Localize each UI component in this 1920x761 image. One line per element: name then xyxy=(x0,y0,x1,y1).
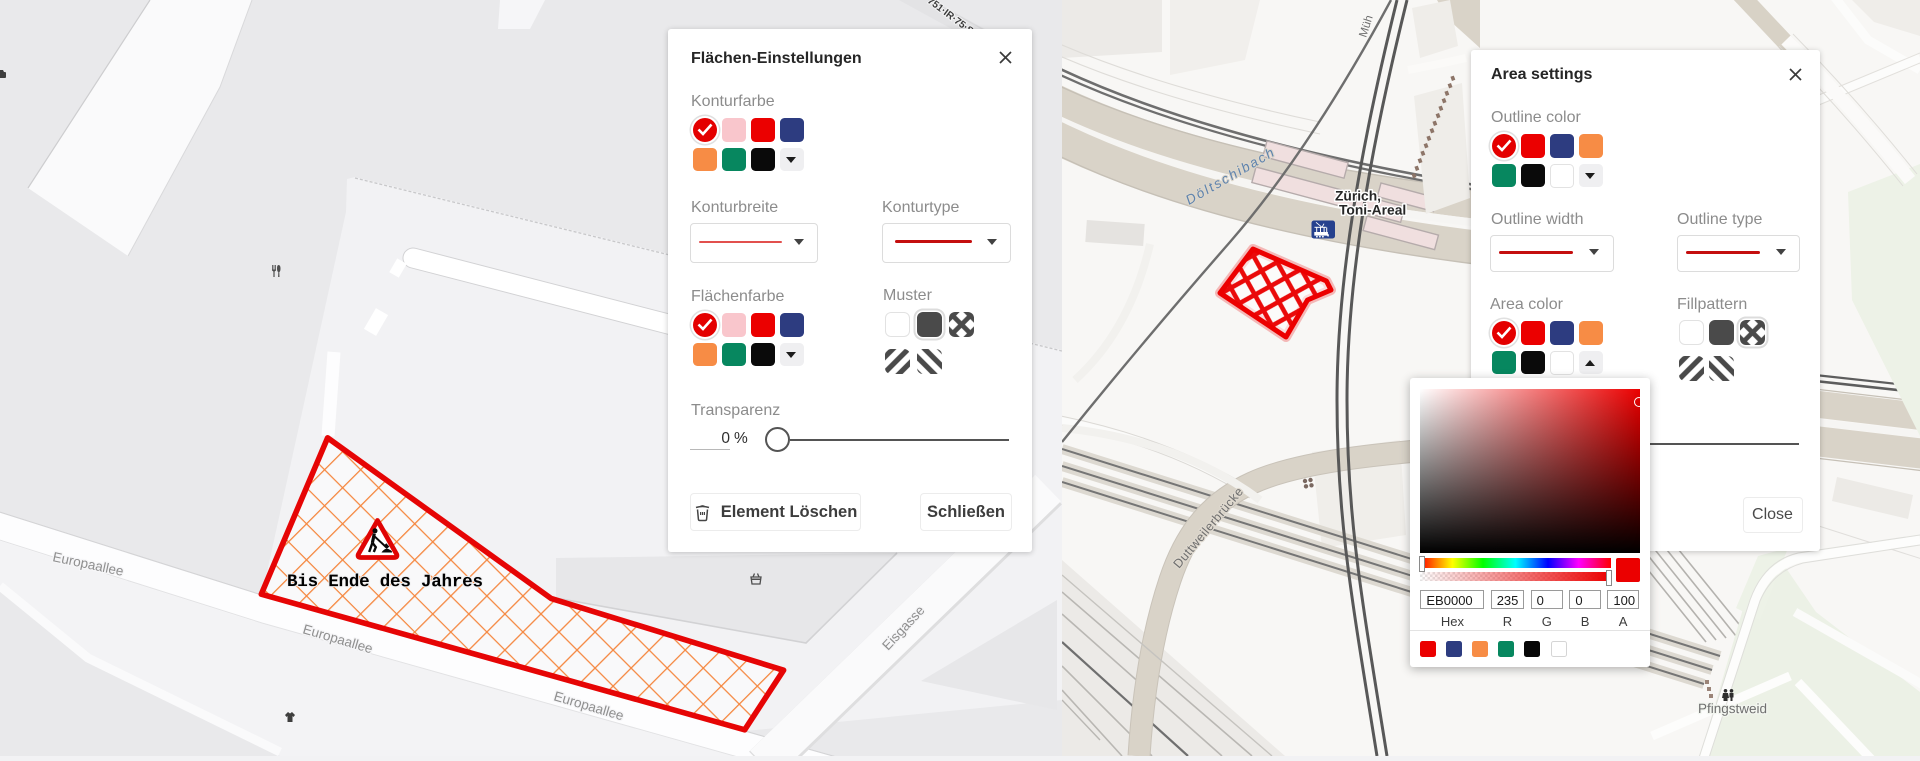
svg-text:Bis Ende des Jahres: Bis Ende des Jahres xyxy=(287,572,483,592)
svg-text:Pfingstweid: Pfingstweid xyxy=(1698,701,1767,716)
svg-text:Toni-Areal: Toni-Areal xyxy=(1339,203,1406,218)
svg-text:Zürich,: Zürich, xyxy=(1335,189,1381,204)
